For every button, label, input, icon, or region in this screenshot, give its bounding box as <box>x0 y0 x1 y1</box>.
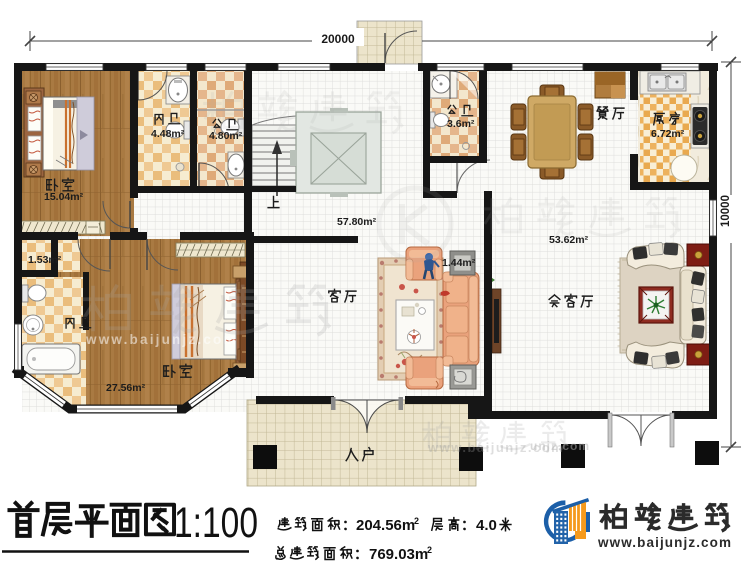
svg-text:6.72m²: 6.72m² <box>651 128 685 140</box>
svg-text:20000: 20000 <box>321 32 355 46</box>
svg-text:2: 2 <box>414 516 419 526</box>
svg-text:2: 2 <box>427 545 432 555</box>
svg-text:27.56m²: 27.56m² <box>106 382 146 394</box>
svg-text:4.0: 4.0 <box>476 517 497 534</box>
svg-text:1.44m²: 1.44m² <box>442 257 476 269</box>
svg-text:204.56m: 204.56m <box>356 517 415 534</box>
svg-text:1:100: 1:100 <box>174 499 258 547</box>
svg-text:www.baijunjz.com: www.baijunjz.com <box>85 332 238 347</box>
svg-text:www.baijunjz.com: www.baijunjz.com <box>597 535 732 550</box>
svg-text:unjz.com: unjz.com <box>530 439 590 453</box>
svg-text:4.80m²: 4.80m² <box>209 130 243 142</box>
svg-text:1.53m²: 1.53m² <box>28 254 62 266</box>
svg-text:：: ： <box>461 517 475 533</box>
svg-text:：: ： <box>354 546 368 562</box>
svg-text:57.80m²: 57.80m² <box>337 216 377 228</box>
svg-text:4.48m²: 4.48m² <box>151 128 185 140</box>
svg-text:10000: 10000 <box>720 195 732 227</box>
svg-text:3.6m²: 3.6m² <box>447 118 475 130</box>
svg-text:15.04m²: 15.04m² <box>44 191 84 203</box>
svg-text:：: ： <box>342 517 356 533</box>
svg-text:769.03m: 769.03m <box>369 546 428 563</box>
svg-text:53.62m²: 53.62m² <box>549 234 589 246</box>
